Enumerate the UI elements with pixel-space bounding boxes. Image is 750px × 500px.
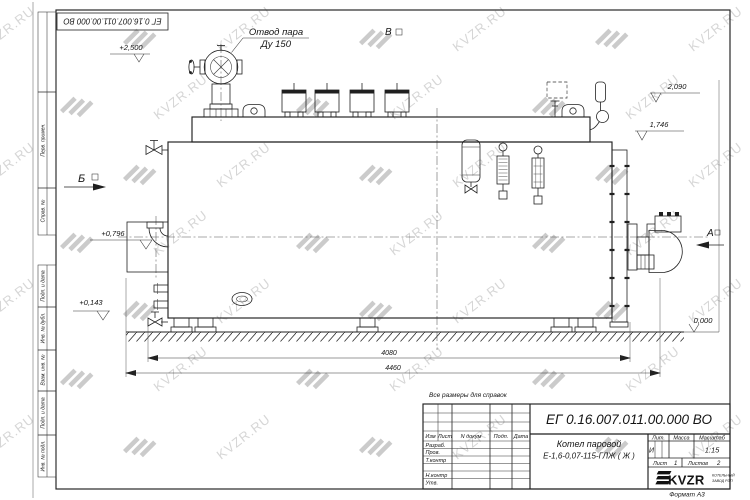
frame-left-column: Перв. примен. Справ. № Подп. и дата Инв.… (38, 12, 56, 477)
watermark-logo-icon (359, 158, 392, 191)
list-value: 1 (674, 461, 677, 467)
watermark-text: KVZR.RU (623, 343, 683, 394)
frame-label-perv-primen: Перв. примен. (41, 123, 47, 156)
watermark-logo-icon (123, 294, 156, 327)
view-marker-b: Б (64, 173, 106, 191)
watermark-text: KVZR.RU (0, 139, 37, 190)
steam-outlet-label-2: Ду 150 (260, 39, 292, 50)
drawing-sheet: KVZR.RUKVZR.RUKVZR.RUKVZR.RUKVZR.RUKVZR.… (0, 0, 750, 500)
dimensions-and-elevations: +2,500 2,090 1,746 +0,796 +0,143 0,000 (64, 27, 724, 377)
logo-text: KVZR (668, 473, 705, 488)
watermark-text: KVZR.RU (387, 71, 447, 122)
col-list: Лист (437, 434, 453, 440)
frame-label-vzam-inv: Взам. инв. № (41, 354, 47, 386)
safety-valve-boxes (282, 83, 409, 117)
frame-label-podp-data-1: Подп. и дата (41, 270, 47, 302)
frame-label-inv-dubl: Инв. № дубл. (41, 313, 47, 344)
dimension-overall-length: 4460 (126, 278, 660, 377)
top-corner-stamp: ЕГ 0.16.007.011.00.000 ВО (57, 13, 168, 30)
watermark-text: KVZR.RU (151, 207, 211, 258)
frame-label-sprav-no: Справ. № (41, 199, 47, 222)
watermark-logo-icon (60, 226, 93, 259)
watermark-text: KVZR.RU (151, 71, 211, 122)
safety-valve-box (350, 83, 374, 117)
row-razrab: Разраб. (426, 443, 446, 449)
listov-label: Листов (687, 461, 708, 467)
elevation-ground: 0,000 (689, 316, 713, 332)
svg-text:Б: Б (78, 173, 85, 185)
steam-outlet-label-1: Отвод пара (249, 27, 303, 38)
svg-text:+0,143: +0,143 (79, 298, 103, 307)
svg-text:+0,796: +0,796 (101, 229, 125, 238)
masshtab-label: Масштаб (699, 436, 726, 442)
row-nkontr: Н.контр (426, 473, 448, 479)
reference-note: Все размеры для справок (429, 391, 508, 399)
watermark-text: KVZR.RU (214, 139, 274, 190)
watermark-text: KVZR.RU (0, 411, 37, 462)
svg-text:4460: 4460 (385, 365, 401, 372)
watermark-logo-icon (296, 90, 329, 123)
drain-valve-icon (148, 318, 162, 326)
svg-text:4080: 4080 (381, 350, 397, 357)
watermark-logo-icon (359, 430, 392, 463)
watermark-text: KVZR.RU (0, 275, 37, 326)
col-podp: Подп. (494, 434, 509, 440)
svg-text:А: А (706, 228, 714, 239)
title-doc-number: ЕГ 0.16.007.011.00.000 ВО (546, 412, 712, 427)
elevation-shell-top: 1,746 (635, 120, 684, 140)
watermark-logo-icon (60, 362, 93, 395)
svg-text:2,090: 2,090 (667, 82, 688, 91)
watermark-logo-icon (296, 362, 329, 395)
row-utv: Утв. (425, 481, 439, 487)
watermark-logo-icon (60, 90, 93, 123)
col-izm: Изм (425, 434, 435, 440)
safety-valve-box (282, 83, 306, 117)
gauge-glass (532, 146, 544, 204)
elevation-lower-fitting: +0,143 (73, 298, 110, 320)
svg-text:+2,500: +2,500 (119, 43, 143, 52)
view-marker-a: А (696, 228, 724, 249)
listov-value: 2 (716, 461, 721, 467)
watermark-logo-icon (595, 22, 628, 55)
massa-label: Масса (673, 436, 689, 442)
company-line-2: ЗАВОД РЭП (712, 479, 733, 483)
scale-value: 1:15 (705, 446, 720, 455)
watermark-text: KVZR.RU (214, 275, 274, 326)
watermark-logo-icon (532, 362, 565, 395)
watermark-text: KVZR.RU (686, 139, 746, 190)
watermark-logo-icon (532, 226, 565, 259)
watermark-text: KVZR.RU (387, 207, 447, 258)
watermark-logo-icon (359, 294, 392, 327)
top-stamp-doc-number: ЕГ 0.16.007.011.00.000 ВО (63, 17, 161, 26)
row-tkontr: Т.контр (426, 458, 447, 464)
watermark-text: KVZR.RU (686, 3, 746, 54)
sensor-outline-dashed (547, 82, 567, 98)
boiler-general-view-drawing: KVZR.RUKVZR.RUKVZR.RUKVZR.RUKVZR.RUKVZR.… (0, 0, 750, 500)
siphon-loop (597, 111, 609, 123)
col-n-dokum: N докум (461, 434, 482, 440)
watermark-text: KVZR.RU (151, 343, 211, 394)
row-prov: Пров. (426, 450, 441, 456)
watermark-text: KVZR.RU (450, 3, 510, 54)
supports (171, 318, 596, 332)
watermark-logo-icon (123, 158, 156, 191)
svg-text:0,000: 0,000 (694, 316, 714, 325)
watermark-logo-icon (296, 226, 329, 259)
watermark-text: KVZR.RU (623, 71, 683, 122)
boiler-drum (192, 117, 590, 142)
pressure-gauge-assembly (590, 82, 609, 130)
col-data: Дата (513, 434, 529, 440)
svg-text:1,746: 1,746 (650, 120, 670, 129)
watermark-text: KVZR.RU (0, 3, 37, 54)
watermark-text: KVZR.RU (214, 411, 274, 462)
company-line-1: КОТЕЛЬНЫЙ (712, 474, 735, 478)
product-name-1: Котел паровой (557, 439, 622, 449)
elevation-front-axis: +0,796 (90, 229, 152, 249)
list-label: Лист (652, 461, 668, 467)
watermark-logo-icon (532, 90, 565, 123)
dimension-support-span: 4080 (148, 322, 630, 362)
boiler-drawing: Отвод пара Ду 150 (118, 27, 719, 350)
company-logo: KVZR КОТЕЛЬНЫЙ ЗАВОД РЭП (651, 471, 735, 488)
watermark-text: KVZR.RU (623, 207, 683, 258)
format-note: Формат А3 (669, 492, 705, 499)
watermark-logo-icon (123, 430, 156, 463)
frame-label-inv-podl: Инв. № подл. (41, 440, 47, 471)
frame-label-podp-data-2: Подп. и дата (41, 397, 47, 429)
watermark-text: KVZR.RU (450, 275, 510, 326)
view-marker-v: В (385, 27, 402, 38)
lit-label: Лит. (651, 436, 665, 442)
svg-text:В: В (385, 27, 392, 38)
lit-value: И (649, 448, 655, 455)
product-name-2: Е-1,6-0,07-115-ГЛЖ ( Ж ) (543, 452, 635, 461)
